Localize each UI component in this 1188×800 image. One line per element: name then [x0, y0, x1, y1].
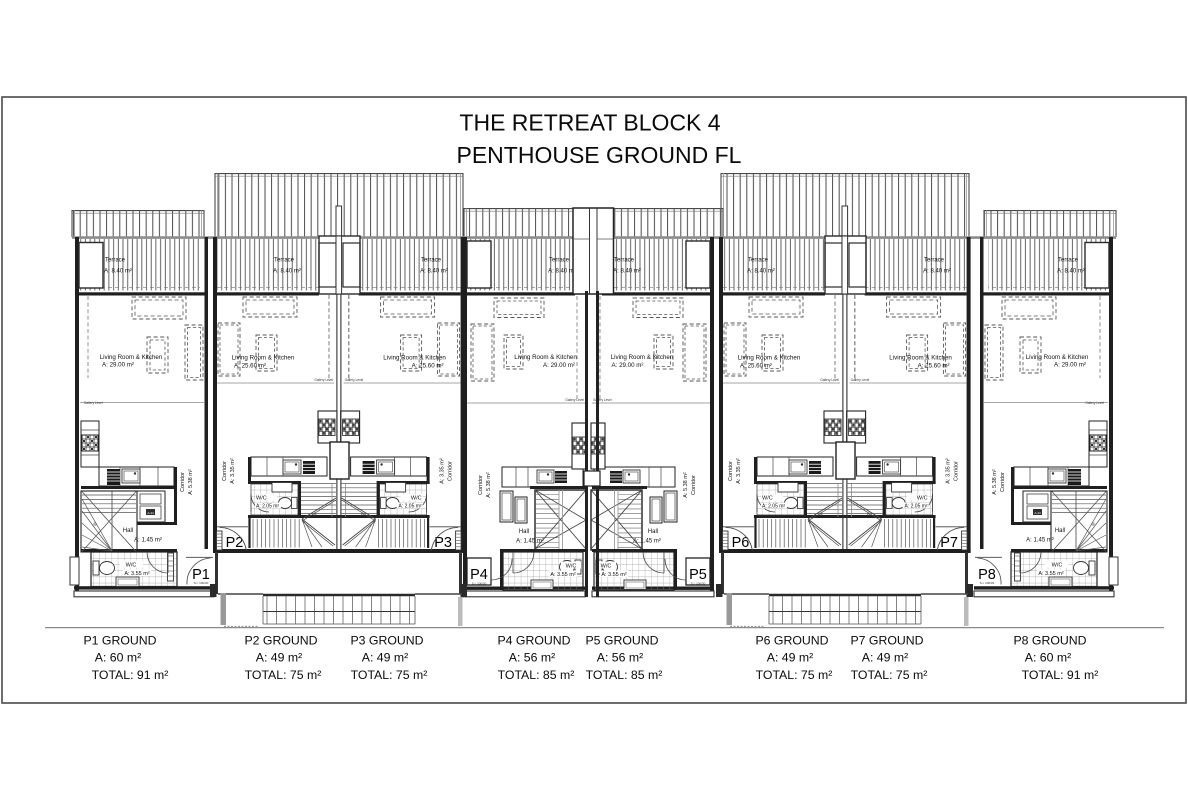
svg-text:Terrace: Terrace	[421, 258, 442, 264]
svg-text:A: 2.05 m²: A: 2.05 m²	[905, 504, 928, 510]
svg-text:A: 3.35 m²: A: 3.35 m²	[230, 458, 236, 484]
svg-text:P5 GROUND: P5 GROUND	[585, 634, 658, 648]
svg-text:Corridor: Corridor	[180, 472, 186, 492]
svg-text:A: 3.35 m²: A: 3.35 m²	[736, 458, 742, 484]
svg-text:Corridor: Corridor	[1000, 472, 1006, 492]
svg-text:Gallery Level: Gallery Level	[345, 378, 364, 382]
svg-text:P4 GROUND: P4 GROUND	[497, 634, 570, 648]
svg-text:A: 3.55 m²: A: 3.55 m²	[1038, 571, 1064, 577]
svg-text:A: 3.55 m²: A: 3.55 m²	[124, 571, 150, 577]
svg-text:A: 8.40 m²: A: 8.40 m²	[548, 268, 576, 274]
svg-text:Corridor: Corridor	[954, 461, 960, 481]
svg-text:A: 8.40 m²: A: 8.40 m²	[420, 268, 448, 274]
svg-text:Living Room & Kitchen: Living Room & Kitchen	[100, 354, 163, 361]
svg-text:Terrace: Terrace	[614, 258, 635, 264]
svg-text:W/C: W/C	[1052, 563, 1063, 569]
svg-text:TOTAL: 91 m²: TOTAL: 91 m²	[1022, 668, 1099, 682]
svg-text:A: 5.38 m²: A: 5.38 m²	[992, 469, 998, 495]
svg-text:A: 29.00 m²: A: 29.00 m²	[1054, 362, 1086, 369]
svg-text:TOTAL: 75 m²: TOTAL: 75 m²	[851, 668, 928, 682]
svg-text:TOTAL: 75 m²: TOTAL: 75 m²	[245, 668, 322, 682]
svg-text:A: 3.35 m²: A: 3.35 m²	[440, 458, 446, 484]
svg-text:Living Room & Kitchen: Living Room & Kitchen	[738, 355, 801, 362]
svg-text:Terrace: Terrace	[105, 258, 126, 264]
svg-text:A: 49 m²: A: 49 m²	[362, 651, 408, 665]
svg-text:Living Room & Kitchen: Living Room & Kitchen	[514, 354, 577, 361]
svg-text:A-44: A-44	[1034, 511, 1041, 515]
svg-text:A: 1.45 m²: A: 1.45 m²	[134, 538, 162, 544]
svg-text:Terrace: Terrace	[1058, 258, 1079, 264]
svg-text:A: 5.38 m²: A: 5.38 m²	[683, 472, 689, 498]
svg-text:W/C: W/C	[411, 496, 422, 502]
svg-text:Corridor: Corridor	[222, 461, 228, 481]
svg-text:Living Room & Kitchen: Living Room & Kitchen	[611, 354, 674, 361]
svg-text:TOTAL: 85 m²: TOTAL: 85 m²	[586, 668, 663, 682]
svg-text:A: 49 m²: A: 49 m²	[256, 651, 302, 665]
svg-text:W/C: W/C	[566, 564, 577, 570]
svg-text:A: 49 m²: A: 49 m²	[767, 651, 813, 665]
svg-text:Gallery Level: Gallery Level	[314, 378, 333, 382]
svg-text:W/C: W/C	[762, 496, 773, 502]
svg-text:P8 GROUND: P8 GROUND	[1013, 634, 1086, 648]
svg-text:A: 25.60 m²: A: 25.60 m²	[234, 363, 266, 370]
svg-text:Gallery Level: Gallery Level	[565, 398, 584, 402]
svg-text:A: 29.00 m²: A: 29.00 m²	[612, 362, 644, 369]
svg-text:A: 49 m²: A: 49 m²	[862, 651, 908, 665]
svg-text:Terrace: Terrace	[924, 258, 945, 264]
svg-text:A: 8.40 m²: A: 8.40 m²	[923, 268, 951, 274]
svg-text:Terrace: Terrace	[274, 258, 295, 264]
svg-text:Living Room & Kitchen: Living Room & Kitchen	[889, 355, 952, 362]
svg-text:Gallery Level: Gallery Level	[84, 401, 103, 405]
svg-text:W/C: W/C	[256, 496, 267, 502]
svg-text:Hall: Hall	[519, 529, 529, 535]
svg-text:TOTAL: 75 m²: TOTAL: 75 m²	[351, 668, 428, 682]
svg-text:Hall: Hall	[123, 528, 133, 534]
svg-text:A: 8.40 m²: A: 8.40 m²	[747, 268, 775, 274]
svg-text:A: 8.40 m²: A: 8.40 m²	[273, 268, 301, 274]
svg-text:Corridor: Corridor	[448, 461, 454, 481]
svg-text:THE RETREAT BLOCK 4: THE RETREAT BLOCK 4	[459, 110, 720, 136]
svg-text:A: 8.40 m²: A: 8.40 m²	[613, 268, 641, 274]
svg-text:P3 GROUND: P3 GROUND	[350, 634, 423, 648]
svg-text:A: 25.60 m²: A: 25.60 m²	[412, 363, 444, 370]
svg-text:P1 GROUND: P1 GROUND	[83, 634, 156, 648]
svg-text:Terrace: Terrace	[549, 258, 570, 264]
svg-text:A: 29.00 m²: A: 29.00 m²	[543, 362, 575, 369]
svg-text:A: 3.35 m²: A: 3.35 m²	[946, 458, 952, 484]
svg-text:S.I. 100/30: S.I. 100/30	[980, 581, 995, 585]
svg-text:W/C: W/C	[917, 496, 928, 502]
svg-text:TOTAL: 85 m²: TOTAL: 85 m²	[498, 668, 575, 682]
svg-text:P6 GROUND: P6 GROUND	[755, 634, 828, 648]
svg-text:W/C: W/C	[601, 564, 612, 570]
svg-text:TOTAL: 75 m²: TOTAL: 75 m²	[756, 668, 833, 682]
svg-text:A: 25.60 m²: A: 25.60 m²	[740, 363, 772, 370]
svg-text:P7 GROUND: P7 GROUND	[850, 634, 923, 648]
svg-text:A: 2.05 m²: A: 2.05 m²	[762, 504, 785, 510]
svg-text:A: 8.40 m²: A: 8.40 m²	[104, 268, 132, 274]
svg-text:A: 60 m²: A: 60 m²	[95, 651, 141, 665]
svg-text:Hall: Hall	[648, 529, 658, 535]
svg-text:TOTAL: 91 m²: TOTAL: 91 m²	[92, 668, 169, 682]
svg-text:Gallery Level: Gallery Level	[1085, 401, 1104, 405]
svg-text:A: 1.45 m²: A: 1.45 m²	[1026, 538, 1054, 544]
svg-text:Corridor: Corridor	[478, 475, 484, 495]
svg-text:A-44: A-44	[147, 511, 154, 515]
svg-text:Living Room & Kitchen: Living Room & Kitchen	[1026, 354, 1089, 361]
svg-text:PENTHOUSE GROUND FL: PENTHOUSE GROUND FL	[457, 142, 742, 168]
svg-text:A: 2.05 m²: A: 2.05 m²	[256, 504, 279, 510]
svg-text:A: 5.38 m²: A: 5.38 m²	[486, 472, 492, 498]
svg-text:S.I. 100/30: S.I. 100/30	[194, 581, 209, 585]
svg-text:Living Room & Kitchen: Living Room & Kitchen	[383, 355, 446, 362]
svg-text:W/C: W/C	[126, 563, 137, 569]
svg-text:S.I. 100/30: S.I. 100/30	[691, 582, 706, 586]
svg-text:A: 8.40 m²: A: 8.40 m²	[1057, 268, 1085, 274]
svg-text:Corridor: Corridor	[691, 475, 697, 495]
svg-text:P2 GROUND: P2 GROUND	[244, 634, 317, 648]
svg-text:S.I. 100/30: S.I. 100/30	[472, 582, 487, 586]
svg-text:A: 5.38 m²: A: 5.38 m²	[188, 469, 194, 495]
svg-text:A: 60 m²: A: 60 m²	[1025, 651, 1071, 665]
svg-text:Gallery Level: Gallery Level	[820, 378, 839, 382]
svg-text:Gallery Level: Gallery Level	[851, 378, 870, 382]
svg-text:Gallery Level: Gallery Level	[593, 398, 612, 402]
svg-text:Living Room & Kitchen: Living Room & Kitchen	[232, 355, 295, 362]
svg-text:A: 25.60 m²: A: 25.60 m²	[918, 363, 950, 370]
svg-text:Hall: Hall	[1055, 528, 1065, 534]
svg-text:Terrace: Terrace	[748, 258, 769, 264]
svg-text:A: 3.55 m²: A: 3.55 m²	[550, 572, 576, 578]
svg-text:A: 56 m²: A: 56 m²	[597, 651, 643, 665]
svg-text:Corridor: Corridor	[728, 461, 734, 481]
svg-text:A: 29.00 m²: A: 29.00 m²	[102, 362, 134, 369]
svg-text:A: 2.05 m²: A: 2.05 m²	[399, 504, 422, 510]
svg-text:A: 3.55 m²: A: 3.55 m²	[601, 572, 627, 578]
svg-text:A: 56 m²: A: 56 m²	[509, 651, 555, 665]
